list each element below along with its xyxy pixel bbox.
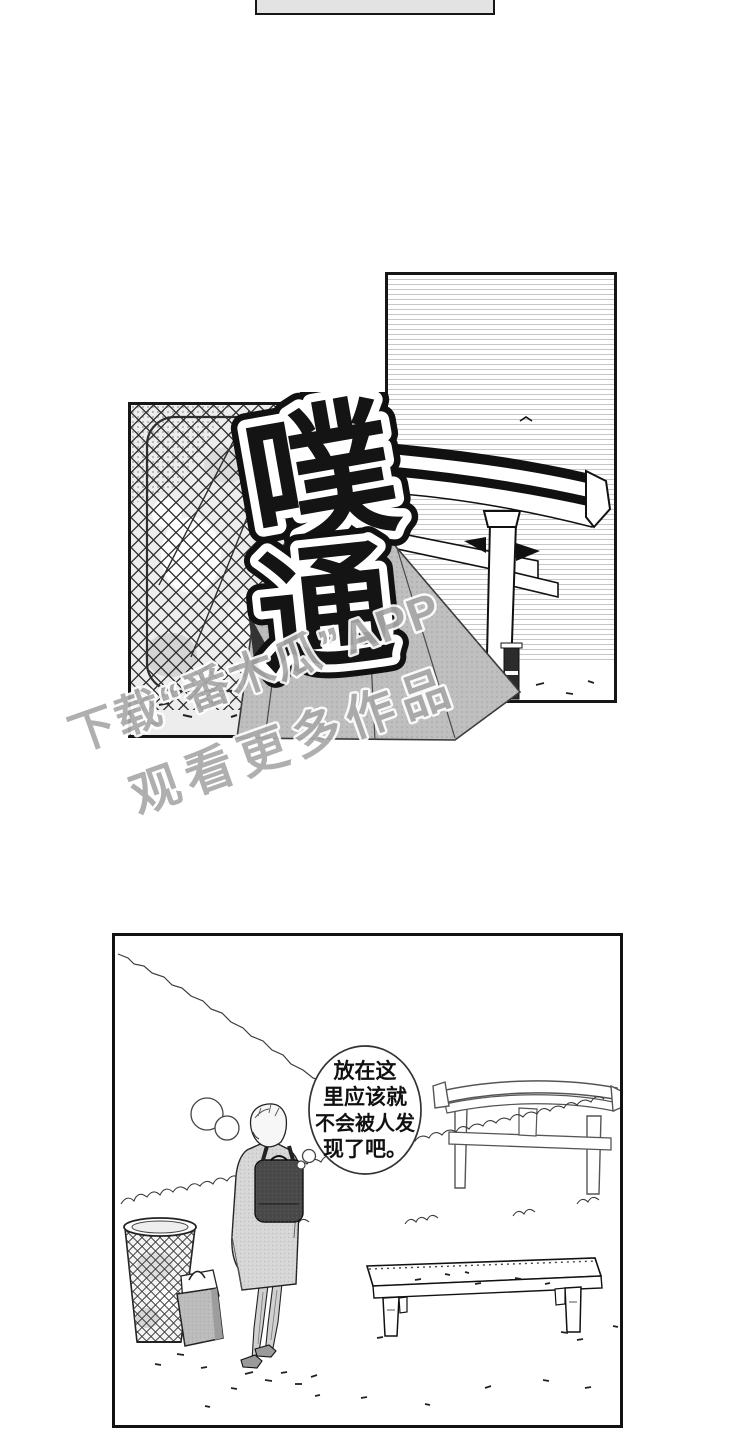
shopping-bag	[177, 1270, 223, 1346]
manga-page: 噗 噗 噗 通 通 通 下载“番木瓜”APP 观看更多作品	[0, 0, 740, 1440]
park-torii	[433, 1081, 620, 1194]
park-art: 放在这 里应该就 不会被人发 现了吧。	[115, 936, 620, 1425]
panel-park-scene: 放在这 里应该就 不会被人发 现了吧。	[112, 933, 623, 1428]
thought-puffs	[191, 1098, 239, 1140]
watermark: 下载“番木瓜”APP 观看更多作品	[40, 560, 540, 860]
thought-bubble: 放在这 里应该就 不会被人发 现了吧。	[297, 1046, 421, 1174]
svg-text:现了吧。: 现了吧。	[323, 1138, 407, 1161]
character-boy	[232, 1104, 303, 1368]
svg-text:里应该就: 里应该就	[323, 1085, 407, 1109]
bench	[367, 1258, 602, 1336]
top-partial-panel	[255, 0, 495, 15]
bird-icon	[520, 417, 532, 421]
svg-text:放在这: 放在这	[333, 1059, 397, 1083]
hill-contour	[118, 954, 335, 1089]
svg-text:不会被人发: 不会被人发	[315, 1111, 416, 1135]
